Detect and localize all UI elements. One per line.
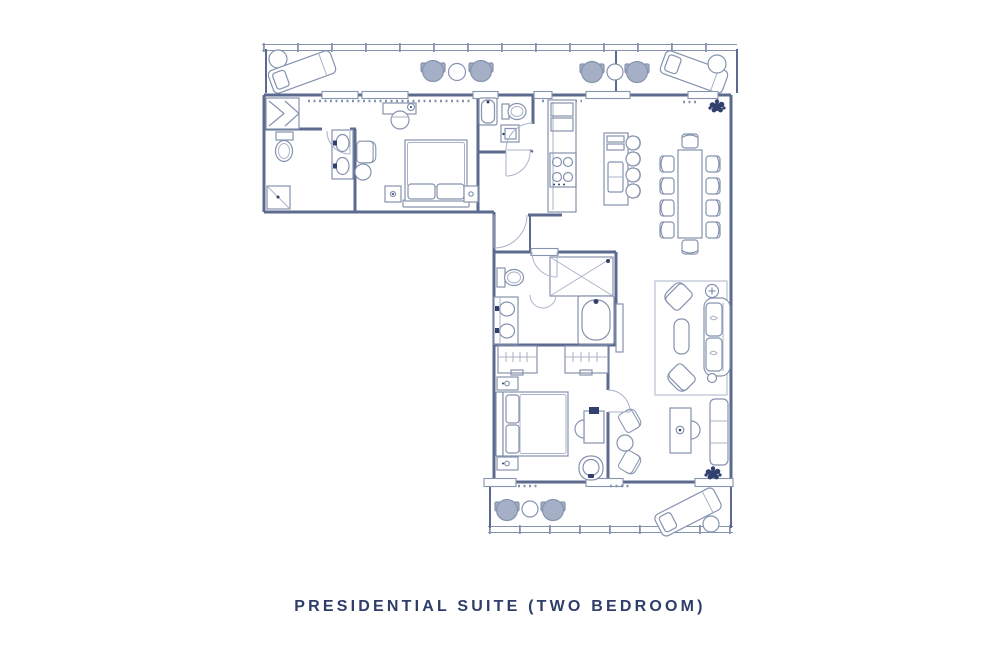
kitchen <box>548 100 640 212</box>
pillow <box>437 184 464 199</box>
nightstand <box>464 186 478 202</box>
sink <box>501 125 519 142</box>
armchair <box>357 141 376 163</box>
master-bathroom <box>494 252 614 344</box>
bathtub <box>578 296 614 344</box>
wash-basin <box>579 456 603 480</box>
coffee-table <box>674 319 689 354</box>
side-table <box>708 55 726 73</box>
bar-stool <box>626 168 640 182</box>
dining-chair <box>660 200 674 216</box>
writing-desk <box>670 408 700 453</box>
side-table-plant <box>706 285 719 298</box>
dining-chair <box>706 222 720 238</box>
side-table <box>703 516 719 532</box>
window <box>586 92 630 99</box>
desk-chair <box>391 111 409 129</box>
pillow <box>506 395 519 423</box>
dining-chair <box>706 156 720 172</box>
floorplan-drawing <box>0 0 1000 666</box>
entry-door <box>494 215 527 248</box>
window <box>688 92 718 99</box>
dining-area <box>660 134 720 254</box>
reading-nook <box>617 407 643 476</box>
toilet <box>497 268 524 287</box>
door-threshold <box>531 249 558 256</box>
window <box>534 92 552 99</box>
bedroom-2 <box>266 98 478 207</box>
balcony-door <box>484 479 516 487</box>
sofa <box>704 298 730 376</box>
pillow <box>408 184 435 199</box>
desk <box>575 407 604 443</box>
balcony-chair <box>495 500 519 521</box>
dining-chair <box>706 200 720 216</box>
round-table <box>607 64 623 80</box>
round-table <box>449 64 466 81</box>
nightstand <box>497 457 518 470</box>
closet <box>266 98 299 129</box>
side-table <box>708 374 717 383</box>
bar-stool <box>626 136 640 150</box>
dining-table <box>678 150 702 238</box>
door <box>608 390 630 412</box>
desk-chair <box>575 420 584 438</box>
nightstand <box>385 186 401 202</box>
dining-chair <box>682 134 698 148</box>
balcony-chair <box>469 61 493 82</box>
ottoman <box>355 164 371 180</box>
plant <box>704 466 721 479</box>
double-door <box>530 295 556 308</box>
master-bedroom <box>496 346 630 480</box>
balcony-chair <box>580 62 604 83</box>
bed <box>496 392 568 456</box>
kitchen-island <box>604 133 628 205</box>
tv-console <box>616 304 623 352</box>
bar-stool <box>626 152 640 166</box>
balcony-door <box>695 479 733 487</box>
dining-chair <box>706 178 720 194</box>
toilet <box>276 132 294 162</box>
round-table <box>617 435 633 451</box>
dining-chair <box>660 156 674 172</box>
vanity-double-sink <box>494 297 518 344</box>
lounge-bench <box>710 399 728 465</box>
toilet <box>502 104 526 120</box>
armchair <box>665 362 697 394</box>
window <box>362 92 408 99</box>
closet <box>565 346 608 375</box>
balcony-top <box>262 45 737 95</box>
plan-title: PRESIDENTIAL SUITE (TWO BEDROOM) <box>0 598 1000 616</box>
shower <box>267 186 290 209</box>
dining-chair <box>660 222 674 238</box>
bathtub <box>479 98 497 125</box>
round-table <box>522 501 538 517</box>
desk-chair <box>691 421 700 439</box>
bathroom-2 <box>267 130 353 209</box>
plant <box>708 99 725 112</box>
armchair <box>662 280 694 312</box>
balcony-chair <box>541 500 565 521</box>
desk <box>383 103 416 129</box>
shower <box>550 257 613 296</box>
bar-stool <box>626 184 640 198</box>
door <box>506 152 530 176</box>
floorplan-page: PRESIDENTIAL SUITE (TWO BEDROOM) <box>0 0 1000 666</box>
dining-chair <box>682 240 698 254</box>
balcony-bottom <box>488 482 733 538</box>
kitchen-counter <box>548 100 576 212</box>
bed <box>403 140 469 207</box>
nook-chair <box>617 449 643 476</box>
pillow <box>506 425 519 453</box>
guest-bathroom <box>479 98 533 176</box>
balcony-chair <box>421 61 445 82</box>
dining-chair <box>660 178 674 194</box>
window <box>322 92 358 99</box>
laptop <box>589 407 599 414</box>
nightstand <box>497 377 518 390</box>
closet <box>498 346 537 375</box>
balcony-chair <box>625 62 649 83</box>
entry <box>494 215 527 248</box>
